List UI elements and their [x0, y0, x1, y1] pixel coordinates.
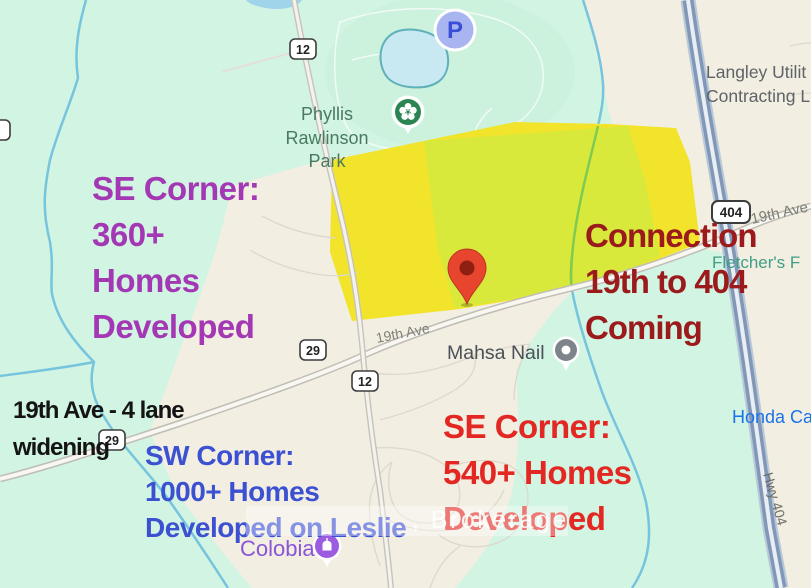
parking-icon[interactable]: P: [434, 9, 477, 52]
langley-label-line2: Contracting L: [706, 86, 810, 106]
langley-label-line1: Langley Utilit: [706, 62, 806, 82]
shield-12-mid-text: 12: [358, 375, 372, 389]
annotation-line: 19th to 404: [585, 259, 756, 305]
annotation-line: Developed: [92, 304, 259, 350]
watermark-band: , Brokerage: [246, 506, 568, 536]
annotation-line: SE Corner:: [92, 166, 259, 212]
park-label-line1: Phyllis: [301, 104, 353, 124]
road-shield-29-mid: 29: [300, 340, 326, 360]
annotation-line: SE Corner:: [443, 404, 632, 450]
map-screenshot: 12 29 12 29 404 19th Ave 19th Ave Hwy 40…: [0, 0, 811, 588]
annotation-line: Connection: [585, 213, 756, 259]
annotation-line: 360+: [92, 212, 259, 258]
annotation-line: 540+ Homes: [443, 450, 632, 496]
poi-honda[interactable]: Honda Ca: [732, 407, 811, 427]
partial-road-shield: [0, 120, 10, 140]
road-shield-12-mid: 12: [352, 371, 378, 391]
shield-12-top-text: 12: [296, 43, 310, 57]
park-label-line2: Rawlinson: [285, 128, 368, 148]
annotation-line: Homes: [92, 258, 259, 304]
shield-29-mid-text: 29: [306, 344, 320, 358]
annotation-line: 1000+ Homes: [145, 474, 406, 510]
annotation-connection-404: Connection 19th to 404 Coming: [585, 213, 756, 351]
annotation-line: SW Corner:: [145, 438, 406, 474]
annotation-line: 19th Ave - 4 lane: [13, 392, 184, 429]
watermark-text: , Brokerage: [412, 506, 569, 535]
parking-letter: P: [447, 17, 463, 44]
annotation-line: Coming: [585, 305, 756, 351]
road-shield-12-top: 12: [290, 39, 316, 59]
poi-mahsa-nail[interactable]: Mahsa Nail: [447, 342, 545, 364]
annotation-se-corner-360: SE Corner: 360+ Homes Developed: [92, 166, 259, 350]
park-label-line3: Park: [308, 151, 346, 171]
